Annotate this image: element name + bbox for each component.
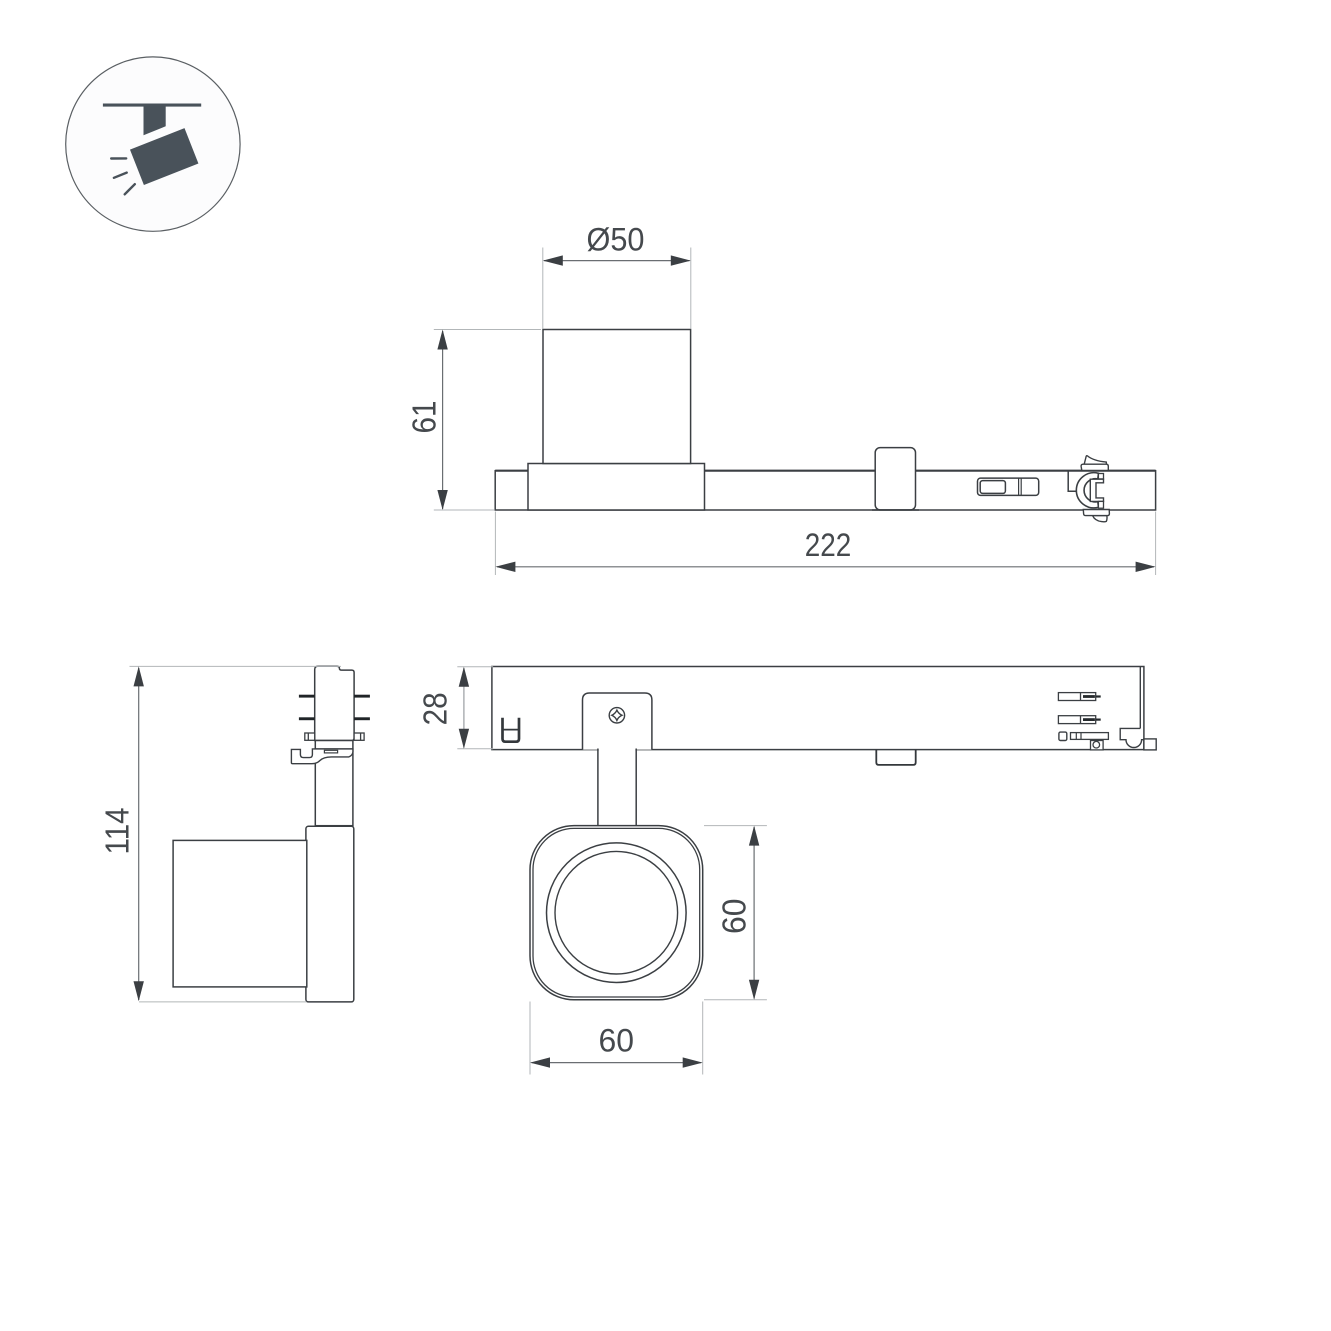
svg-text:114: 114 <box>99 808 136 855</box>
svg-text:28: 28 <box>417 692 454 725</box>
svg-text:222: 222 <box>805 527 852 563</box>
svg-text:60: 60 <box>599 1023 635 1059</box>
svg-text:Ø50: Ø50 <box>587 221 645 257</box>
svg-text:61: 61 <box>406 401 443 434</box>
svg-text:60: 60 <box>716 899 753 935</box>
